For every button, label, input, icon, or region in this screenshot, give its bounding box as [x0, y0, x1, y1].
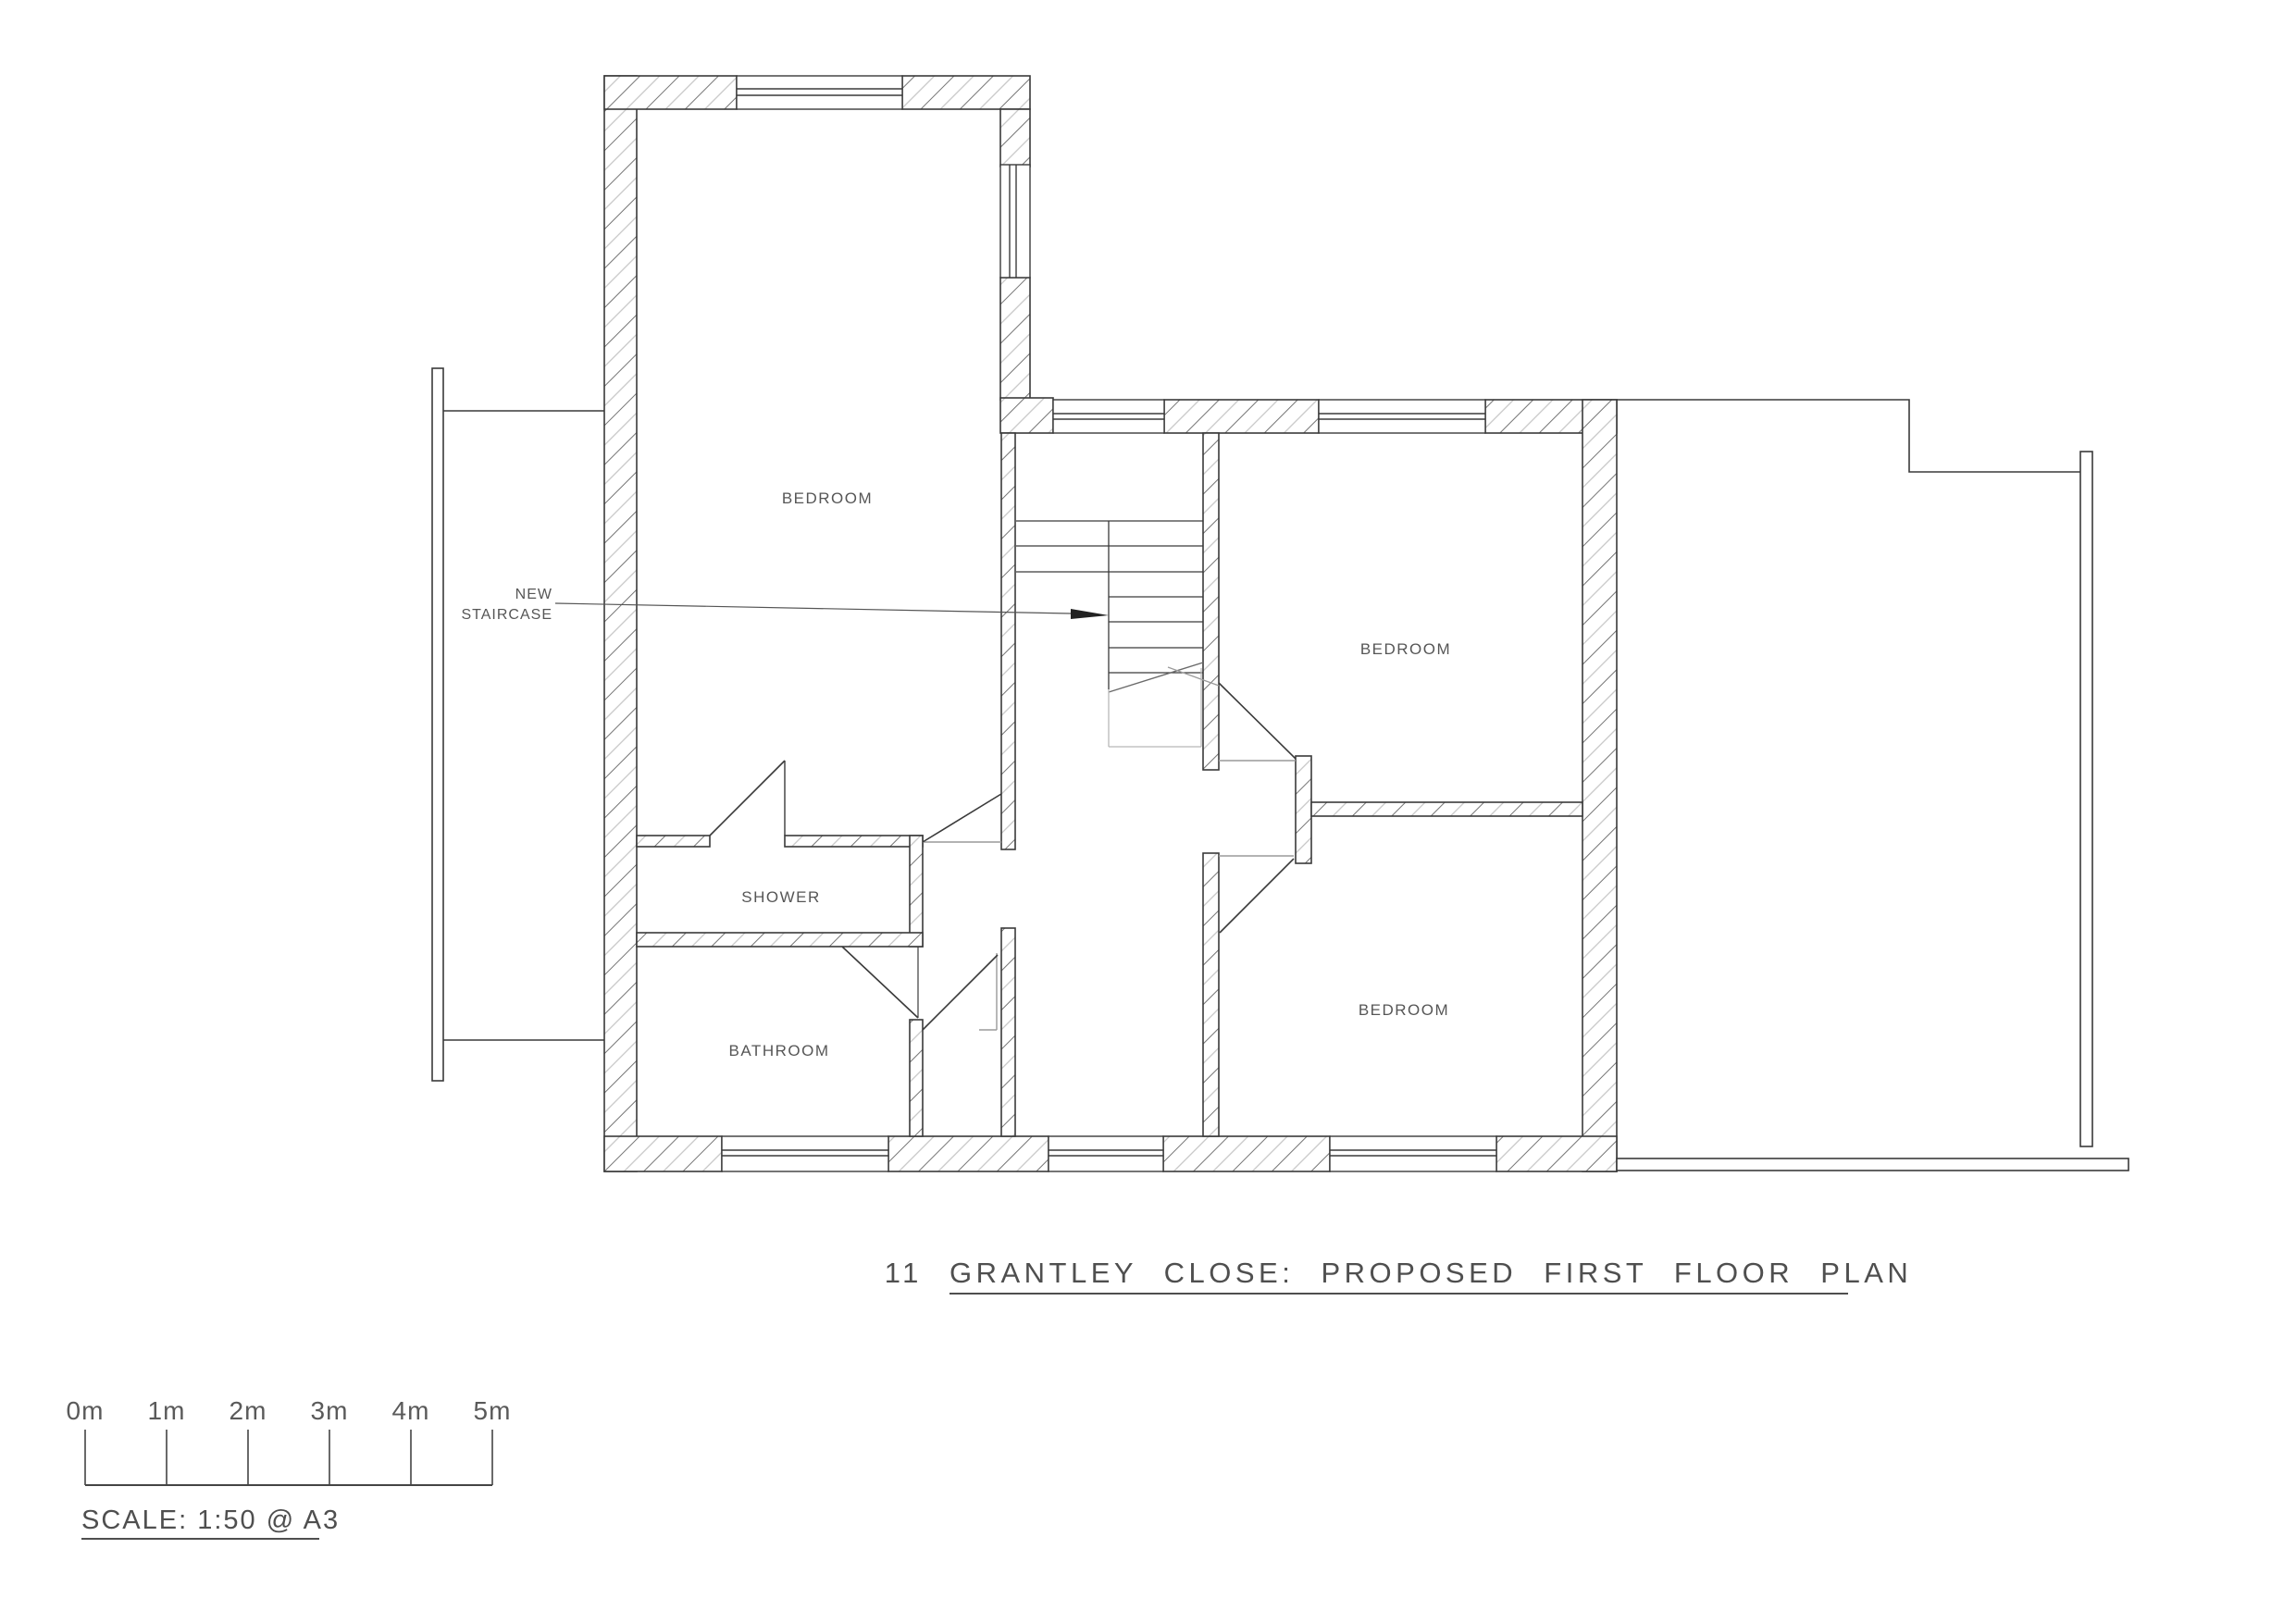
window-bedroom-main-right	[1000, 165, 1030, 278]
annotation-staircase: STAIRCASE	[462, 607, 553, 623]
wall-bathroom-right	[910, 1020, 923, 1136]
balcony-rail-bar	[432, 368, 443, 1081]
title-text: 11 GRANTLEY CLOSE: PROPOSED FIRST FLOOR …	[885, 1257, 1913, 1289]
window-bedroom-right-bottom	[1330, 1136, 1496, 1171]
wall-shower-top-left	[637, 836, 710, 847]
scale-label-5m: 5m	[474, 1396, 512, 1425]
leader-arrowhead	[1071, 609, 1109, 619]
wall-shower-top-right	[785, 836, 923, 847]
scale-label-2m: 2m	[230, 1396, 267, 1425]
door-lobby	[923, 953, 998, 1030]
scale-label-0m: 0m	[67, 1396, 105, 1425]
wall-door-jamb-block	[1296, 756, 1311, 863]
label-bedroom-main: BEDROOM	[782, 489, 873, 507]
scale-label-4m: 4m	[392, 1396, 430, 1425]
window-bottom-middle	[1049, 1136, 1163, 1171]
new-staircase-annotation: NEW STAIRCASE	[462, 587, 553, 623]
wall-hall-left-upper	[1001, 433, 1015, 849]
right-terrace	[1617, 400, 2128, 1171]
terrace-top-edge	[1617, 400, 2080, 472]
wall-stairwell-right-lower	[1203, 853, 1219, 1136]
wall-bedroom-main-right-upper	[1000, 109, 1030, 167]
walls	[604, 76, 1617, 1171]
stair-break-line	[1109, 663, 1203, 692]
label-bedroom-right-top: BEDROOM	[1360, 640, 1451, 658]
drawing-title: 11 GRANTLEY CLOSE: PROPOSED FIRST FLOOR …	[885, 1257, 1913, 1294]
label-shower: SHOWER	[741, 888, 821, 906]
left-balcony	[432, 368, 604, 1081]
terrace-bottom-strip	[1617, 1158, 2128, 1171]
wall-bedroom-divider	[1311, 802, 1582, 816]
wall-right-outer	[1582, 400, 1617, 1171]
terrace-rail-bar	[2080, 452, 2092, 1146]
scale-caption: SCALE: 1:50 @ A3	[81, 1505, 340, 1535]
window-landing-top	[1053, 400, 1164, 433]
scale-label-3m: 3m	[311, 1396, 349, 1425]
wall-bottom-pier-4	[1496, 1136, 1617, 1171]
door-bedroom-right-top	[1219, 683, 1296, 761]
room-labels: BEDROOM BEDROOM BEDROOM SHOWER BATHROOM	[729, 489, 1452, 1059]
scale-tick-labels: 0m 1m 2m 3m 4m 5m	[67, 1396, 512, 1425]
wall-shower-bottom	[637, 933, 923, 947]
floor-plan-svg: BEDROOM BEDROOM BEDROOM SHOWER BATHROOM …	[0, 0, 2296, 1623]
scale-bar: 0m 1m 2m 3m 4m 5m SCALE: 1:50 @ A3	[67, 1396, 512, 1539]
scale-ticks	[85, 1430, 492, 1485]
door-bathroom	[842, 947, 918, 1018]
annotation-new: NEW	[515, 587, 552, 602]
window-bedroom-main-top	[737, 76, 902, 109]
window-bedroom-right-top	[1319, 400, 1485, 433]
drawing-sheet: BEDROOM BEDROOM BEDROOM SHOWER BATHROOM …	[0, 0, 2296, 1623]
wall-top-pier-right	[902, 76, 1030, 109]
door-bedroom-main-hall	[923, 794, 1001, 842]
stair-understair-outline	[1109, 668, 1201, 747]
scale-label-1m: 1m	[148, 1396, 186, 1425]
staircase	[1016, 521, 1219, 747]
wall-junction-block	[1000, 398, 1053, 433]
wall-top-pier-left	[604, 76, 737, 109]
wall-stairwell-right-upper	[1203, 433, 1219, 770]
window-bathroom-bottom	[722, 1136, 888, 1171]
new-staircase-leader	[555, 603, 1109, 619]
door-bedroom-main-shower	[710, 761, 785, 836]
wall-bedroom-main-right-mid	[1000, 278, 1030, 400]
wall-corridor-top-pier	[1164, 400, 1319, 433]
label-bathroom: BATHROOM	[729, 1042, 830, 1059]
label-bedroom-right-bottom: BEDROOM	[1359, 1001, 1449, 1019]
wall-left-outer	[604, 76, 637, 1171]
wall-bottom-pier-1	[604, 1136, 722, 1171]
door-bedroom-right-bottom	[1219, 856, 1294, 933]
wall-hall-left-lower	[1001, 928, 1015, 1136]
wall-bottom-pier-2	[888, 1136, 1049, 1171]
wall-bottom-pier-3	[1163, 1136, 1330, 1171]
wall-shower-right	[910, 836, 923, 947]
